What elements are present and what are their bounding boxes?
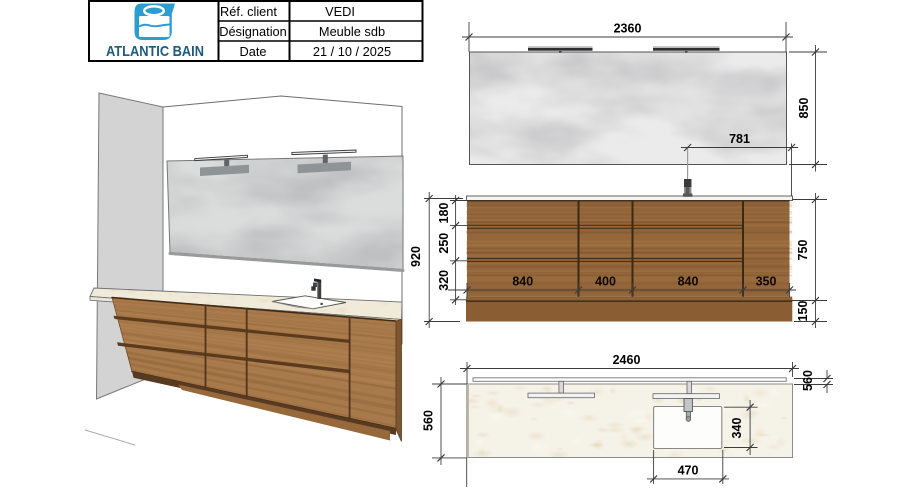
svg-text:320: 320 [437,270,451,291]
svg-text:350: 350 [756,275,777,289]
svg-text:Date: Date [239,44,266,59]
svg-text:750: 750 [796,240,810,261]
svg-text:250: 250 [437,233,451,254]
svg-text:560: 560 [422,410,436,431]
svg-text:Désignation: Désignation [219,24,287,39]
svg-text:920: 920 [409,246,423,267]
svg-text:150: 150 [796,301,810,322]
svg-text:400: 400 [595,275,616,289]
svg-text:2460: 2460 [613,353,641,367]
svg-text:Meuble sdb: Meuble sdb [319,24,385,39]
svg-text:Réf. client: Réf. client [220,4,277,19]
svg-text:781: 781 [729,132,750,146]
svg-text:21 / 10 / 2025: 21 / 10 / 2025 [313,44,391,59]
svg-text:850: 850 [797,98,811,119]
svg-text:2360: 2360 [614,22,642,36]
svg-text:VEDI: VEDI [325,4,355,19]
svg-text:ATLANTIC BAIN: ATLANTIC BAIN [106,43,204,60]
svg-text:840: 840 [678,275,699,289]
svg-text:840: 840 [512,275,533,289]
svg-text:470: 470 [678,464,699,478]
svg-text:340: 340 [730,418,744,439]
svg-text:180: 180 [437,203,451,224]
svg-text:560: 560 [801,370,815,391]
